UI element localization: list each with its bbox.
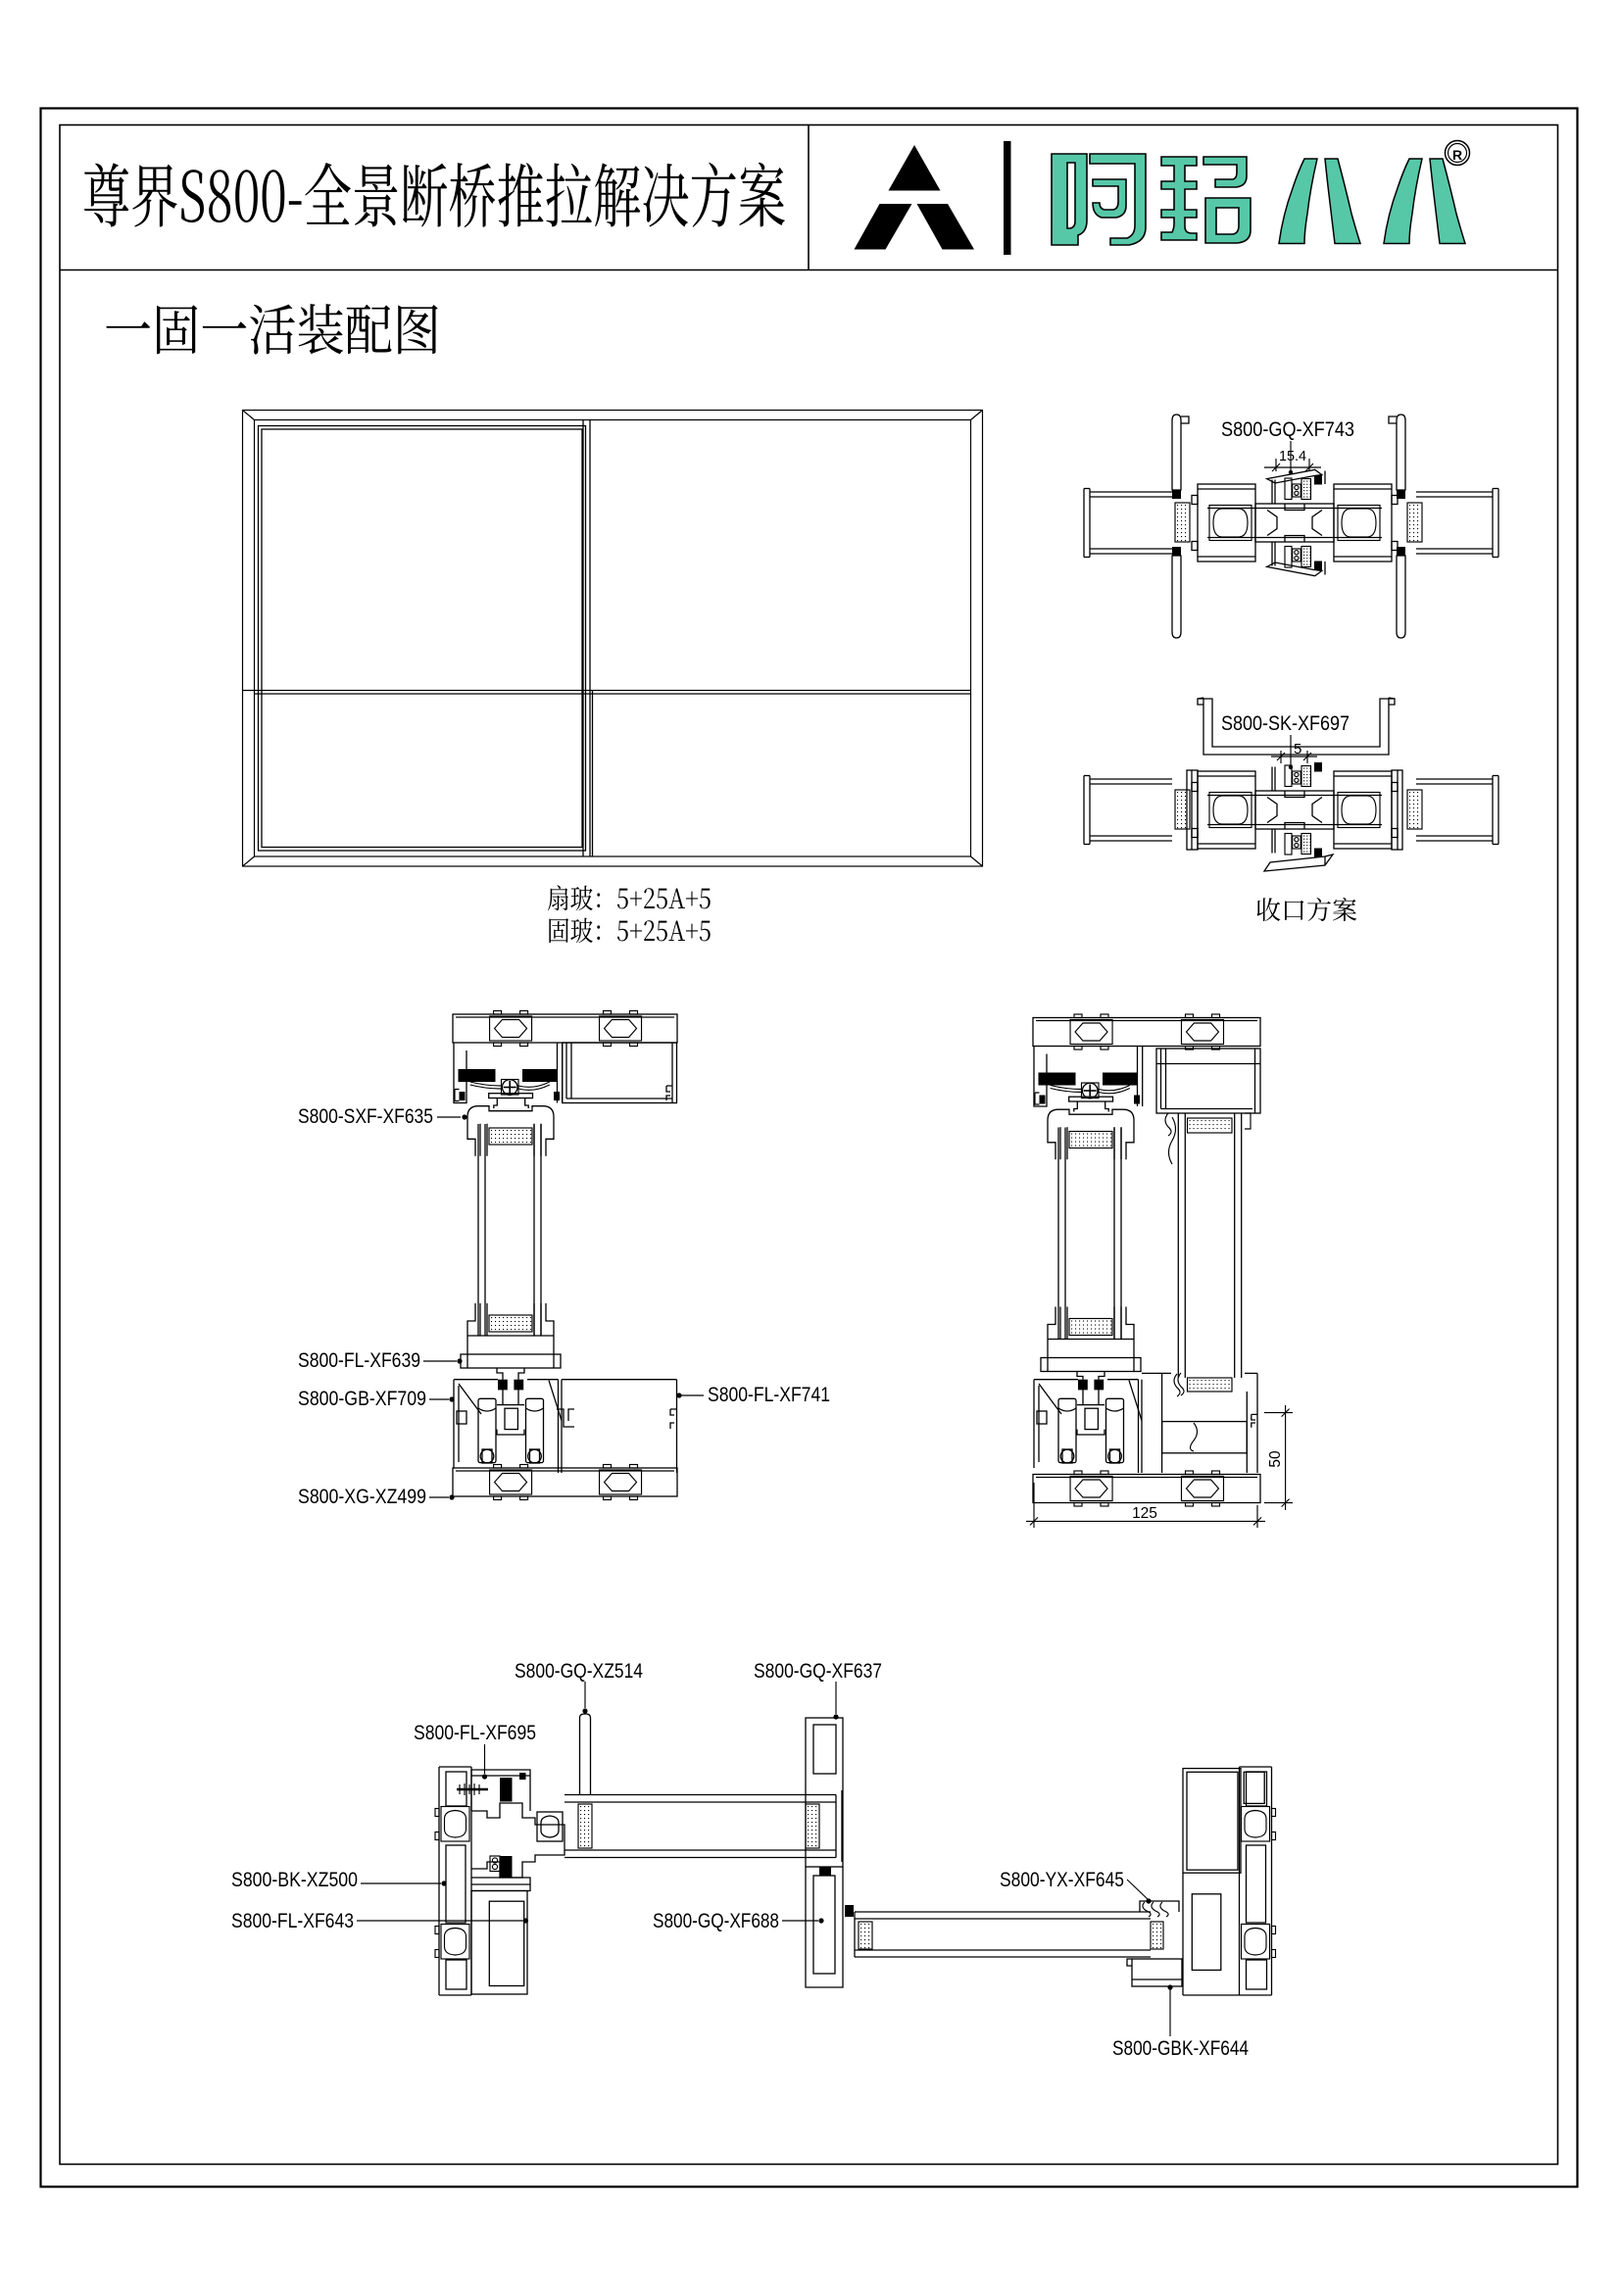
svg-text:S800-YX-XF645: S800-YX-XF645: [1000, 1868, 1124, 1891]
svg-text:S800-GB-XF709: S800-GB-XF709: [298, 1387, 426, 1410]
svg-text:125: 125: [1132, 1505, 1157, 1522]
svg-text:S800-FL-XF639: S800-FL-XF639: [298, 1348, 420, 1372]
svg-text:15.4: 15.4: [1279, 448, 1306, 464]
svg-text:S800-BK-XZ500: S800-BK-XZ500: [231, 1868, 358, 1891]
svg-text:S800-FL-XF695: S800-FL-XF695: [414, 1721, 536, 1744]
svg-text:S800-FL-XF741: S800-FL-XF741: [708, 1383, 830, 1406]
svg-text:S800-SXF-XF635: S800-SXF-XF635: [298, 1104, 433, 1128]
svg-text:S800-FL-XF643: S800-FL-XF643: [231, 1909, 354, 1932]
svg-text:S800-GBK-XF644: S800-GBK-XF644: [1112, 2036, 1249, 2060]
svg-text:R: R: [1452, 147, 1462, 163]
svg-text:S800-GQ-XZ514: S800-GQ-XZ514: [515, 1659, 643, 1683]
svg-text:50: 50: [1267, 1450, 1284, 1468]
svg-text:S800-GQ-XF688: S800-GQ-XF688: [653, 1909, 779, 1932]
svg-text:S800-GQ-XF743: S800-GQ-XF743: [1221, 417, 1354, 441]
svg-text:S800-XG-XZ499: S800-XG-XZ499: [298, 1485, 426, 1508]
svg-text:S800-SK-XF697: S800-SK-XF697: [1221, 711, 1350, 735]
svg-text:S800-GQ-XF637: S800-GQ-XF637: [754, 1659, 882, 1683]
